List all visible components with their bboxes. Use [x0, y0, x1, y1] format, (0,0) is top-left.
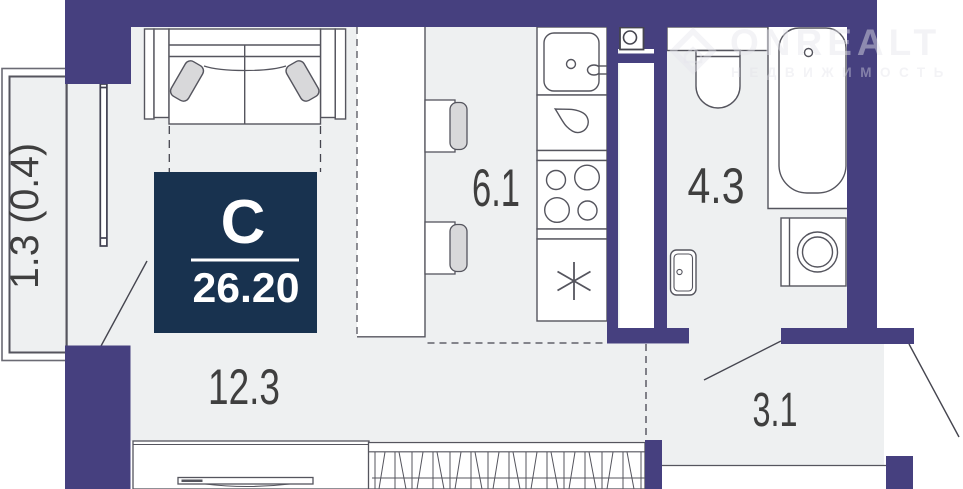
- svg-text:НЕДВИЖИМОСТЬ: НЕДВИЖИМОСТЬ: [731, 65, 952, 80]
- svg-text:6.1: 6.1: [472, 159, 520, 218]
- svg-text:12.3: 12.3: [208, 359, 280, 415]
- svg-text:ONREALT: ONREALT: [730, 22, 941, 63]
- svg-text:26.20: 26.20: [193, 264, 300, 311]
- svg-text:4.3: 4.3: [688, 158, 745, 214]
- svg-text:1.3 (0.4): 1.3 (0.4): [3, 143, 47, 289]
- svg-text:3.1: 3.1: [753, 384, 798, 437]
- svg-text:С: С: [221, 188, 266, 257]
